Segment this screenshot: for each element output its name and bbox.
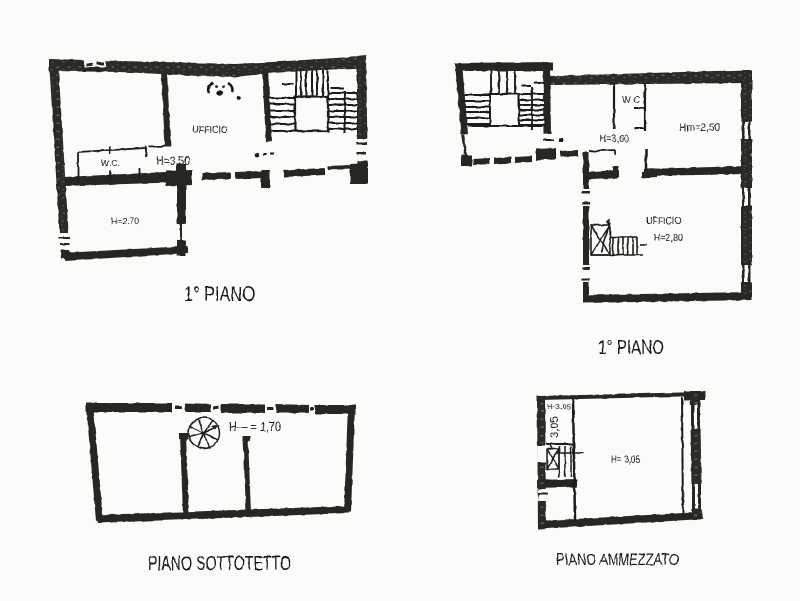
svg-text:H-3,05: H-3,05 bbox=[547, 404, 571, 411]
svg-text:H= 3,05: H= 3,05 bbox=[611, 454, 640, 466]
svg-text:H=3,60: H=3,60 bbox=[600, 133, 629, 145]
svg-text:W.C.: W.C. bbox=[101, 158, 120, 168]
svg-text:PIANO SOTTOTETTO: PIANO SOTTOTETTO bbox=[148, 553, 291, 575]
svg-text:H=2.70: H=2.70 bbox=[111, 216, 139, 227]
svg-text:3,05: 3,05 bbox=[549, 417, 561, 438]
svg-text:1° PIANO: 1° PIANO bbox=[598, 337, 664, 359]
svg-text:H=2,80: H=2,80 bbox=[654, 233, 683, 244]
svg-text:UFFICIO: UFFICIO bbox=[646, 215, 681, 227]
svg-text:PIANO AMMEZZATO: PIANO AMMEZZATO bbox=[556, 550, 679, 569]
svg-text:UFFICIO: UFFICIO bbox=[192, 125, 228, 136]
svg-text:H=3,50: H=3,50 bbox=[156, 154, 190, 168]
svg-text:H— = 1,70: H— = 1,70 bbox=[229, 419, 281, 434]
svg-text:W C: W C bbox=[622, 95, 640, 106]
svg-text:1° PIANO: 1° PIANO bbox=[184, 283, 255, 306]
svg-text:Hm=2,50: Hm=2,50 bbox=[679, 122, 720, 134]
